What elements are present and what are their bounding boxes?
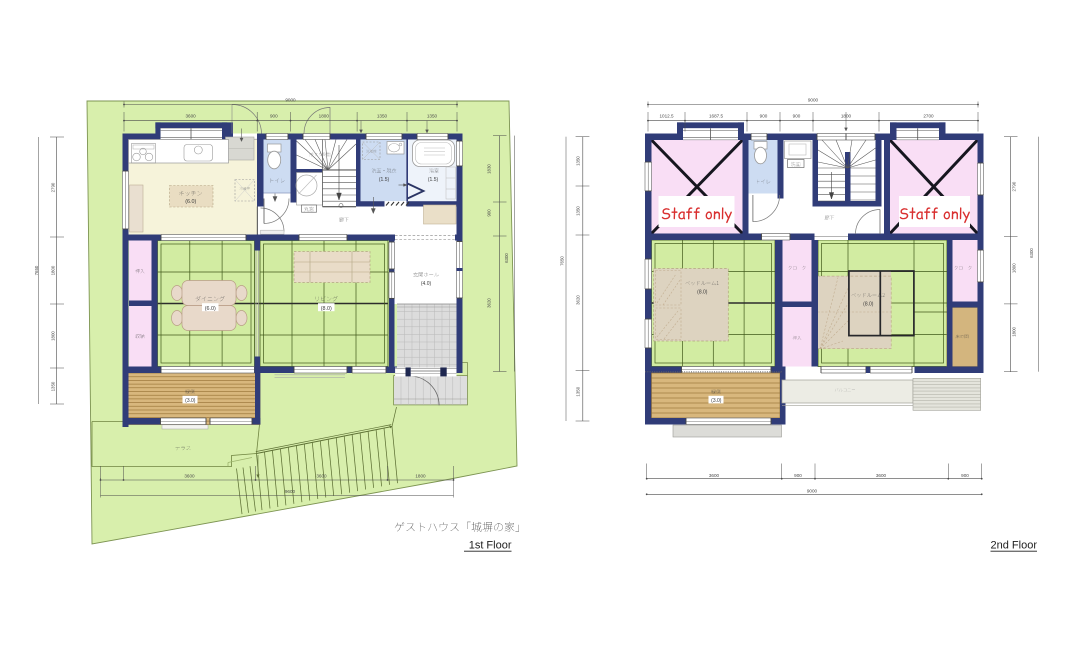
svg-text:1350: 1350 <box>427 114 438 119</box>
svg-text:900: 900 <box>793 114 801 119</box>
svg-text:9000: 9000 <box>807 489 818 494</box>
svg-text:3620: 3620 <box>487 298 492 308</box>
svg-text:1st Floor: 1st Floor <box>469 540 512 552</box>
svg-text:(1.5): (1.5) <box>428 177 439 183</box>
svg-text:6300: 6300 <box>1029 248 1034 258</box>
svg-text:1800: 1800 <box>319 114 330 119</box>
svg-text:2nd Floor: 2nd Floor <box>991 540 1038 552</box>
svg-text:1350: 1350 <box>576 156 581 166</box>
svg-text:3600: 3600 <box>185 114 196 119</box>
svg-text:900: 900 <box>794 473 802 478</box>
svg-text:2790: 2790 <box>1012 181 1017 191</box>
svg-text:1350: 1350 <box>377 114 388 119</box>
svg-text:(4.0): (4.0) <box>421 281 432 287</box>
svg-text:1012.5: 1012.5 <box>659 114 673 119</box>
svg-text:6300: 6300 <box>504 253 509 263</box>
svg-text:3600: 3600 <box>316 474 327 479</box>
svg-text:(3.0): (3.0) <box>185 398 196 404</box>
svg-text:(8.0): (8.0) <box>863 301 874 307</box>
svg-text:9000: 9000 <box>285 98 296 103</box>
svg-text:(3.0): (3.0) <box>711 398 722 404</box>
svg-text:1830: 1830 <box>487 164 492 174</box>
svg-text:9600: 9600 <box>285 489 296 494</box>
svg-text:3620: 3620 <box>576 295 581 305</box>
svg-text:(8.0): (8.0) <box>321 306 332 312</box>
svg-text:3600: 3600 <box>709 473 720 478</box>
svg-text:900: 900 <box>270 114 278 119</box>
svg-text:(1.5): (1.5) <box>379 177 390 183</box>
svg-text:900: 900 <box>487 209 492 217</box>
svg-text:(6.0): (6.0) <box>185 199 196 205</box>
svg-text:1350: 1350 <box>51 381 56 391</box>
svg-text:1800: 1800 <box>51 265 56 275</box>
svg-text:3600: 3600 <box>184 474 195 479</box>
svg-text:1800: 1800 <box>51 331 56 341</box>
svg-text:1350: 1350 <box>576 386 581 396</box>
svg-text:(6.0): (6.0) <box>205 306 216 312</box>
svg-text:1800: 1800 <box>415 474 426 479</box>
svg-text:1687.5: 1687.5 <box>709 114 723 119</box>
svg-text:1800: 1800 <box>1012 263 1017 273</box>
svg-text:900: 900 <box>961 473 969 478</box>
svg-text:(8.0): (8.0) <box>697 289 708 295</box>
svg-text:1350: 1350 <box>576 206 581 216</box>
svg-text:3600: 3600 <box>876 473 887 478</box>
svg-text:7650: 7650 <box>560 256 565 266</box>
svg-text:1800: 1800 <box>841 114 852 119</box>
svg-text:1800: 1800 <box>1012 326 1017 336</box>
svg-text:2790: 2790 <box>51 182 56 192</box>
svg-text:2700: 2700 <box>923 114 934 119</box>
svg-text:900: 900 <box>760 114 768 119</box>
svg-text:9000: 9000 <box>808 98 819 103</box>
